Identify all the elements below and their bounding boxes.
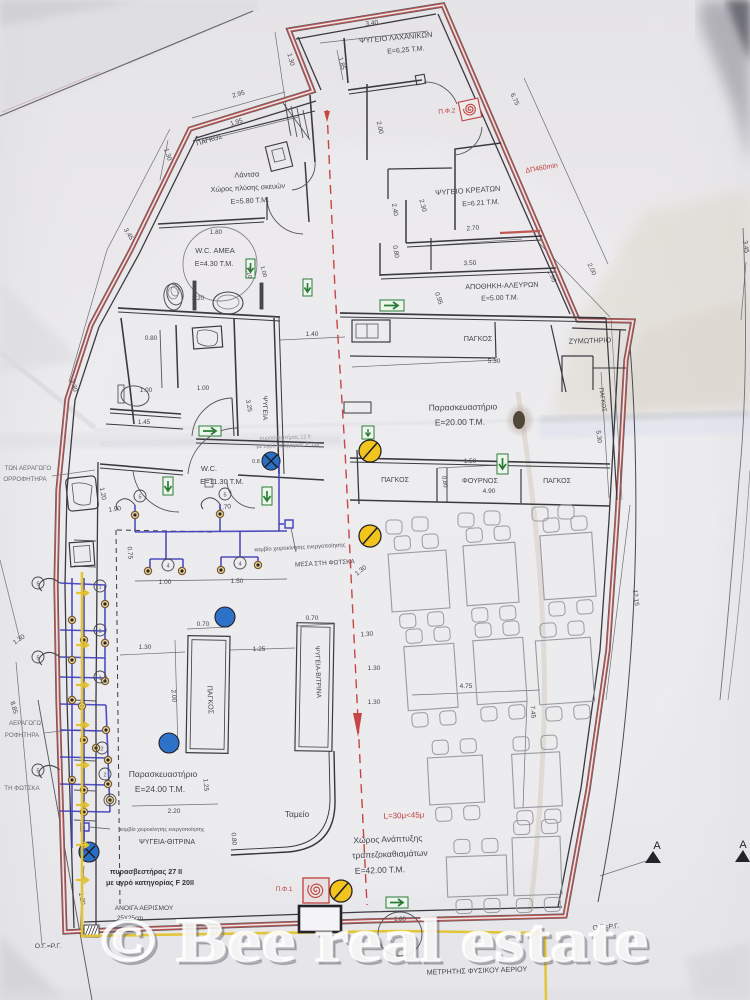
svg-text:0.70: 0.70 xyxy=(197,621,210,628)
svg-text:2.20: 2.20 xyxy=(192,295,205,302)
svg-text:1.45: 1.45 xyxy=(138,419,151,426)
svg-text:ΦΟΥΡΝΟΣ: ΦΟΥΡΝΟΣ xyxy=(462,476,498,485)
svg-text:ΠΑΓΚΟΣ: ΠΑΓΚΟΣ xyxy=(205,685,216,715)
svg-text:πυρασβεστήρας 27 ΙΙ: πυρασβεστήρας 27 ΙΙ xyxy=(110,867,182,876)
svg-text:1.40: 1.40 xyxy=(306,331,319,338)
svg-text:Ε=11.30 Τ.Μ.: Ε=11.30 Τ.Μ. xyxy=(200,477,244,486)
svg-text:με υγρό κατηγορίας F 20ΙΙ: με υγρό κατηγορίας F 20ΙΙ xyxy=(106,878,194,887)
svg-text:1.50: 1.50 xyxy=(231,578,244,585)
svg-text:Ε=42.00 Τ.Μ.: Ε=42.00 Τ.Μ. xyxy=(355,864,406,876)
svg-text:5: 5 xyxy=(36,769,39,775)
svg-text:7.45: 7.45 xyxy=(528,705,536,719)
svg-text:1.25: 1.25 xyxy=(201,778,209,792)
svg-text:Λάντσα: Λάντσα xyxy=(234,169,260,179)
svg-text:1.30: 1.30 xyxy=(368,665,381,672)
svg-text:ΖΥΜΩΤΗΡΙΟ: ΖΥΜΩΤΗΡΙΟ xyxy=(569,335,612,345)
svg-text:W.C. ΑΜΕΑ: W.C. ΑΜΕΑ xyxy=(195,246,235,255)
svg-text:5: 5 xyxy=(36,582,39,588)
svg-text:W.C.: W.C. xyxy=(201,464,217,473)
svg-text:ΨΥΓΕΙΑ-ΘΙΤΡΙΝΑ: ΨΥΓΕΙΑ-ΘΙΤΡΙΝΑ xyxy=(139,839,195,846)
svg-text:ΟΡΡΟΦΗΤΗΡΑ: ΟΡΡΟΦΗΤΗΡΑ xyxy=(3,476,47,483)
svg-text:1.00: 1.00 xyxy=(197,385,210,392)
svg-text:2: 2 xyxy=(100,747,103,753)
svg-text:1.80: 1.80 xyxy=(210,229,223,236)
svg-text:3.50: 3.50 xyxy=(464,260,477,267)
svg-text:2.20: 2.20 xyxy=(168,808,181,815)
svg-text:ΠΑΓΚΟΣ: ΠΑΓΚΟΣ xyxy=(543,478,571,485)
svg-text:1: 1 xyxy=(98,585,101,591)
svg-text:5: 5 xyxy=(223,493,226,499)
svg-text:5: 5 xyxy=(138,495,141,501)
svg-text:4: 4 xyxy=(166,564,169,570)
svg-text:ΡΟΦΗΤΗΡΑ: ΡΟΦΗΤΗΡΑ xyxy=(5,732,40,739)
svg-text:2: 2 xyxy=(103,773,106,779)
svg-text:0.8: 0.8 xyxy=(252,459,260,465)
svg-text:1.30: 1.30 xyxy=(360,630,374,638)
svg-text:0.80: 0.80 xyxy=(229,832,237,846)
svg-text:Ο.Γ.=Ρ.Γ.: Ο.Γ.=Ρ.Γ. xyxy=(35,943,62,950)
svg-text:Ε=24.00 Τ.Μ.: Ε=24.00 Τ.Μ. xyxy=(135,784,185,794)
svg-text:4.75: 4.75 xyxy=(460,683,473,690)
svg-text:ΑΕΡΑΓΩΓΩ: ΑΕΡΑΓΩΓΩ xyxy=(9,720,41,727)
svg-text:Παρασκευαστήριο: Παρασκευαστήριο xyxy=(429,401,498,412)
svg-text:1.30: 1.30 xyxy=(139,644,152,651)
svg-text:1.50: 1.50 xyxy=(464,458,477,465)
svg-text:5: 5 xyxy=(36,656,39,662)
svg-text:ΠΑΓΚΟΣ: ΠΑΓΚΟΣ xyxy=(464,334,493,343)
svg-text:0.70: 0.70 xyxy=(306,615,319,622)
svg-text:Π.Φ.1: Π.Φ.1 xyxy=(275,886,292,893)
svg-text:ΨΥΓΕΙΑ: ΨΥΓΕΙΑ xyxy=(261,396,268,421)
svg-text:1.00: 1.00 xyxy=(140,387,153,394)
svg-text:Ταμείο: Ταμείο xyxy=(285,809,310,819)
svg-text:ΠΑΓΚΟΣ: ΠΑΓΚΟΣ xyxy=(381,477,409,484)
svg-text:4: 4 xyxy=(108,799,111,805)
svg-text:5.30: 5.30 xyxy=(488,358,501,365)
svg-text:L=30μ<45μ: L=30μ<45μ xyxy=(383,810,424,820)
svg-text:κομβίο χειροκίνητης ενεργοποίη: κομβίο χειροκίνητης ενεργοποίησης xyxy=(120,827,205,833)
svg-text:A: A xyxy=(653,840,661,852)
svg-text:Ε=4.30 Τ.Μ.: Ε=4.30 Τ.Μ. xyxy=(195,259,233,268)
svg-text:A: A xyxy=(739,839,747,851)
svg-text:4.90: 4.90 xyxy=(483,488,496,495)
svg-text:Ε=20.00 Τ.Μ.: Ε=20.00 Τ.Μ. xyxy=(435,417,485,428)
svg-text:Παρασκευαστήριο: Παρασκευαστήριο xyxy=(129,769,198,779)
svg-text:ΤΗ ΦΩΤΣΚΑ: ΤΗ ΦΩΤΣΚΑ xyxy=(4,785,40,792)
svg-text:1.25: 1.25 xyxy=(253,646,266,653)
svg-text:1: 1 xyxy=(98,676,101,682)
svg-text:1.30: 1.30 xyxy=(368,699,381,706)
svg-text:0.80: 0.80 xyxy=(145,335,158,342)
svg-text:2.70: 2.70 xyxy=(466,225,479,233)
svg-text:1: 1 xyxy=(98,629,101,635)
svg-text:ΤΩΝ ΑΕΡΑΓΩΓΟ: ΤΩΝ ΑΕΡΑΓΩΓΟ xyxy=(5,465,52,472)
svg-text:1.00: 1.00 xyxy=(159,579,172,586)
svg-text:0.75: 0.75 xyxy=(125,546,133,560)
svg-text:2.00: 2.00 xyxy=(169,689,177,703)
svg-text:Ε=5.00 Τ.Μ.: Ε=5.00 Τ.Μ. xyxy=(481,294,519,302)
svg-text:4: 4 xyxy=(238,562,241,568)
svg-text:© Bee real estate: © Bee real estate xyxy=(99,907,648,975)
